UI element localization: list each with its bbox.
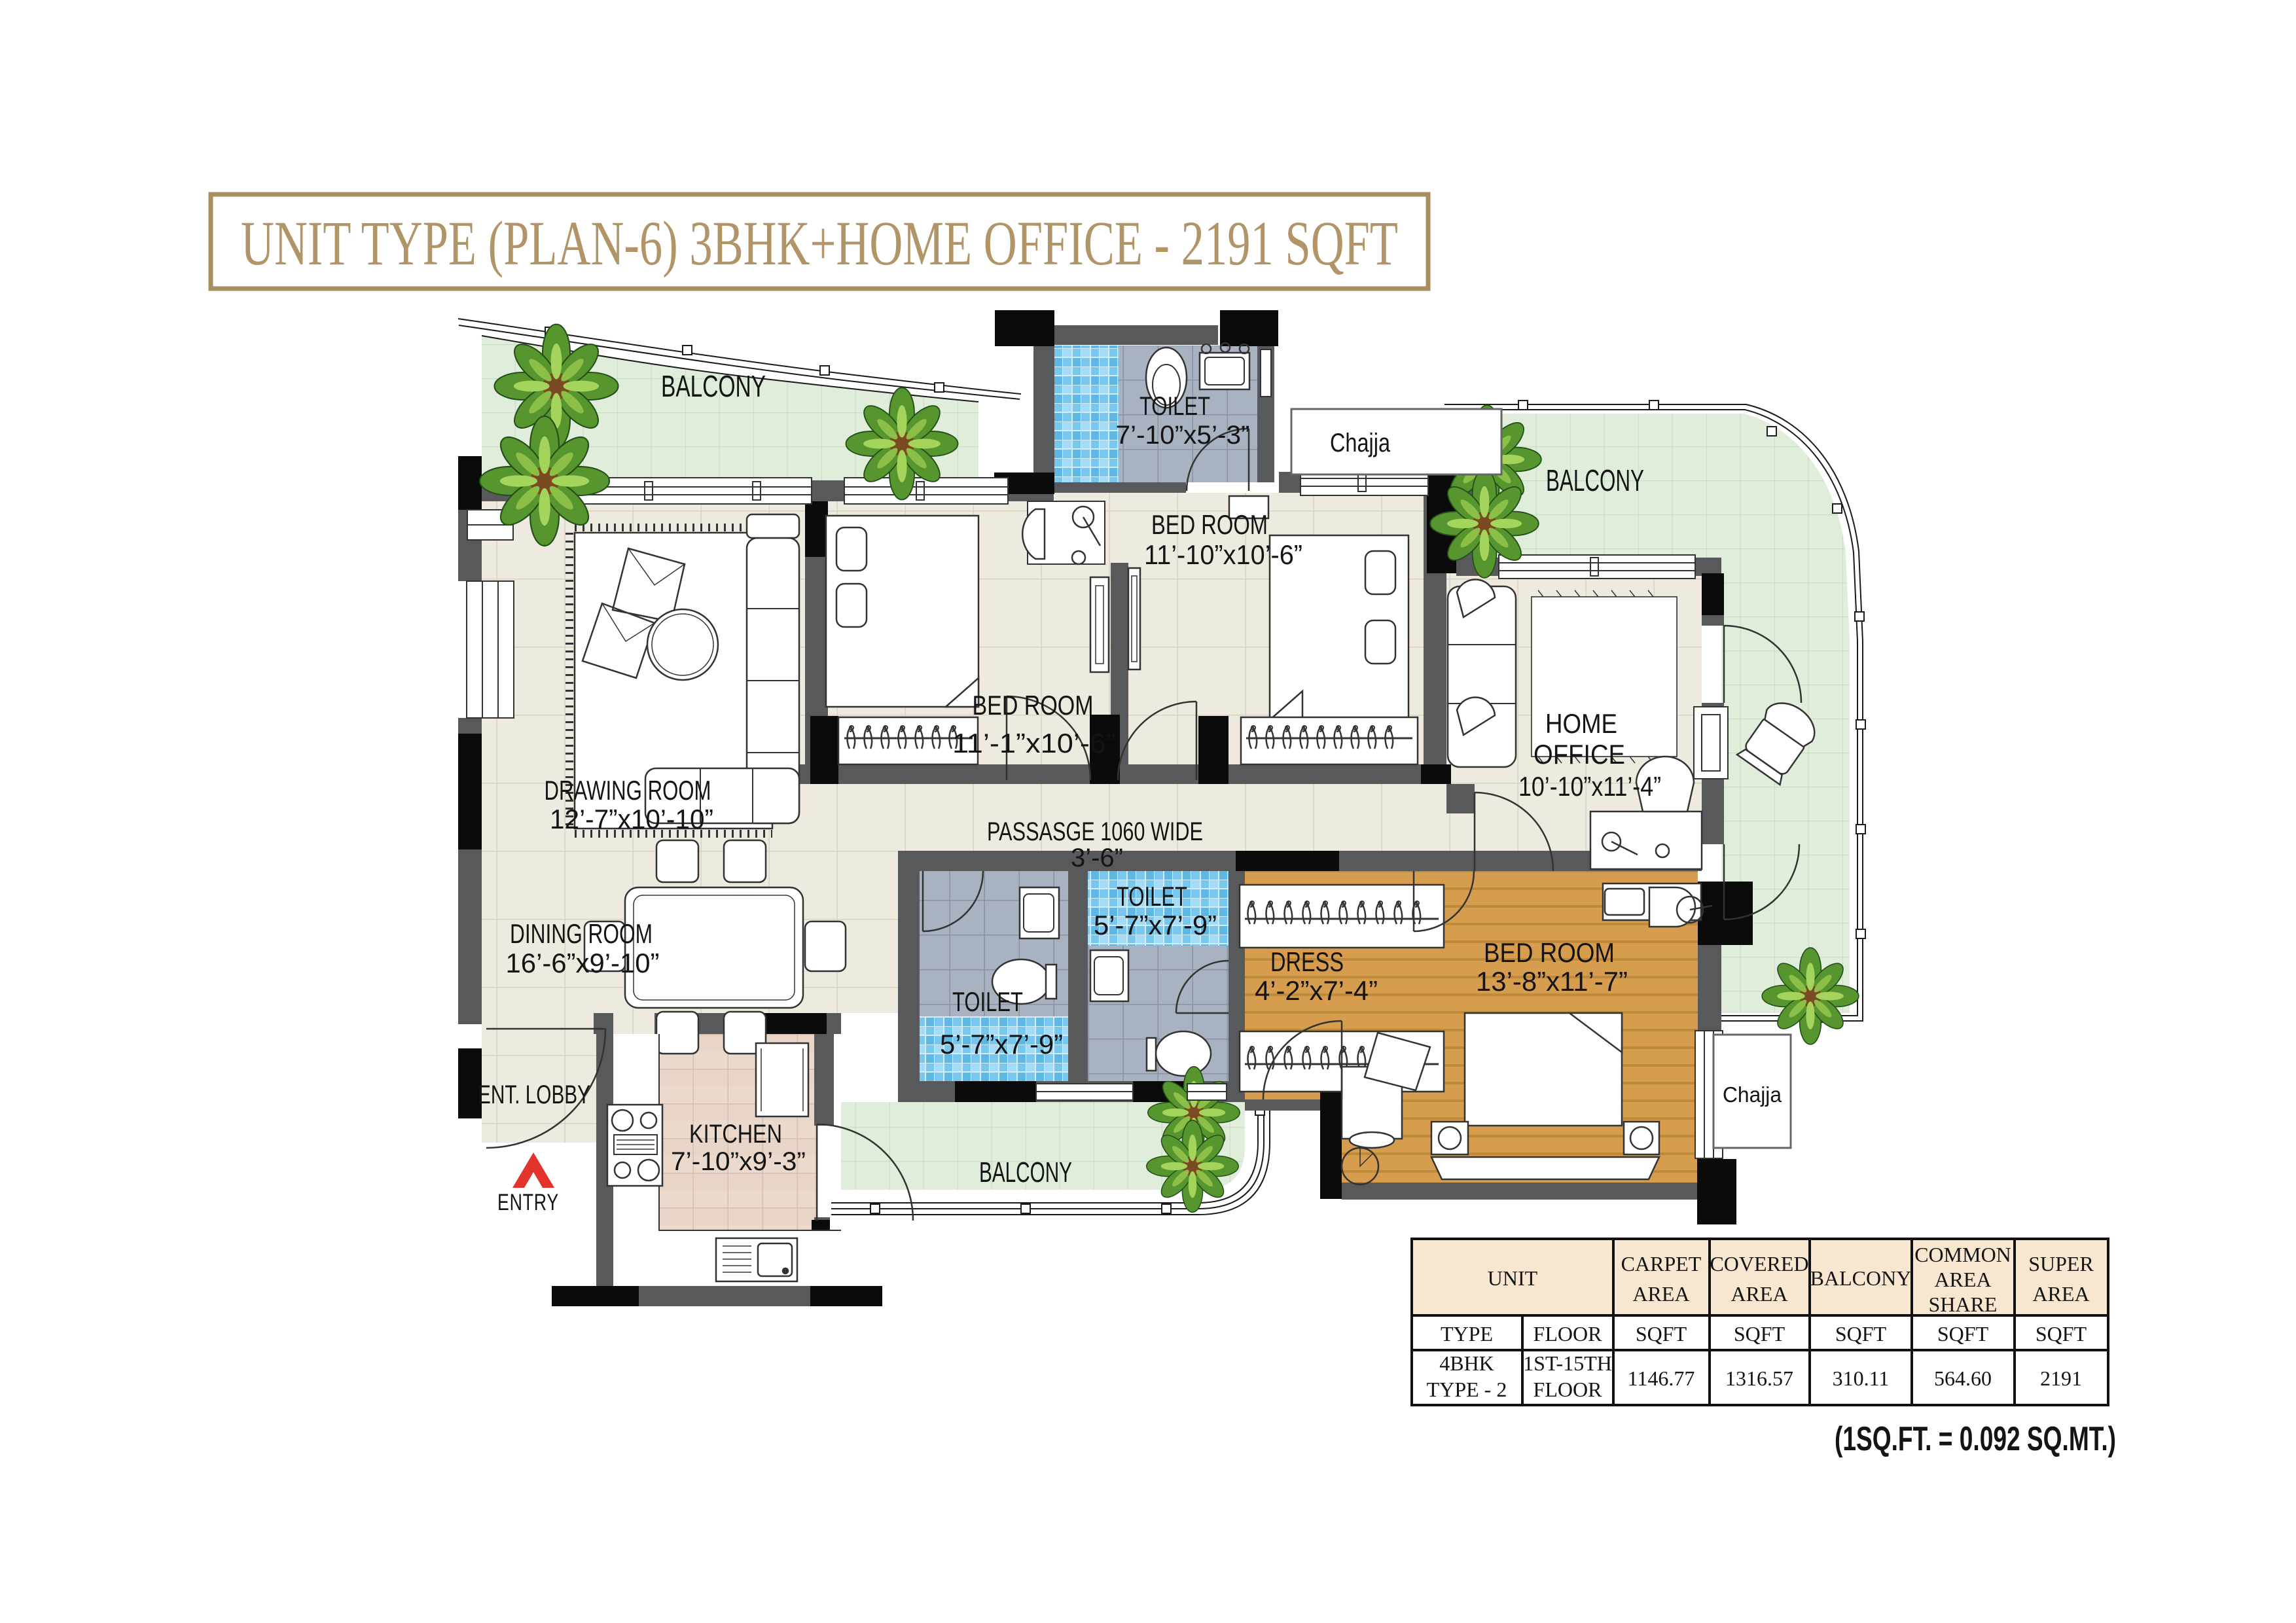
svg-text:DRAWING ROOM: DRAWING ROOM xyxy=(545,775,711,806)
svg-text:10’-10”x11’-4”: 10’-10”x11’-4” xyxy=(1518,771,1661,802)
svg-text:SQFT: SQFT xyxy=(1734,1322,1785,1346)
svg-text:UNIT: UNIT xyxy=(1488,1266,1538,1290)
svg-text:Chajja: Chajja xyxy=(1723,1082,1782,1107)
svg-text:COMMON: COMMON xyxy=(1914,1243,2011,1266)
svg-text:4’-2”x7’-4”: 4’-2”x7’-4” xyxy=(1255,975,1378,1006)
svg-text:BED ROOM: BED ROOM xyxy=(1151,509,1268,540)
svg-text:16’-6”x9’-10”: 16’-6”x9’-10” xyxy=(506,948,660,978)
svg-text:AREA: AREA xyxy=(1934,1268,1991,1291)
svg-text:11’-10”x10’-6”: 11’-10”x10’-6” xyxy=(1144,539,1302,570)
svg-text:TYPE: TYPE xyxy=(1441,1322,1493,1346)
svg-text:OFFICE: OFFICE xyxy=(1534,739,1625,770)
svg-text:7’-10”x9’-3”: 7’-10”x9’-3” xyxy=(671,1147,806,1176)
svg-text:SHARE: SHARE xyxy=(1929,1293,1998,1316)
svg-text:1316.57: 1316.57 xyxy=(1725,1366,1793,1390)
svg-text:SUPER: SUPER xyxy=(2028,1252,2094,1275)
svg-text:TOILET: TOILET xyxy=(952,986,1023,1017)
svg-text:BED ROOM: BED ROOM xyxy=(1484,937,1615,968)
svg-text:11’-1”x10’-6”: 11’-1”x10’-6” xyxy=(952,728,1116,758)
svg-text:AREA: AREA xyxy=(1731,1282,1787,1306)
svg-text:BALCONY: BALCONY xyxy=(1546,463,1644,497)
svg-text:13’-8”x11’-7”: 13’-8”x11’-7” xyxy=(1476,966,1628,997)
svg-text:AREA: AREA xyxy=(1632,1282,1689,1306)
svg-text:BALCONY: BALCONY xyxy=(661,369,766,403)
svg-text:COVERED: COVERED xyxy=(1710,1252,1808,1275)
svg-text:TOILET: TOILET xyxy=(1117,881,1187,912)
svg-text:310.11: 310.11 xyxy=(1833,1366,1890,1390)
svg-text:BALCONY: BALCONY xyxy=(979,1156,1072,1188)
svg-text:2191: 2191 xyxy=(2040,1366,2082,1390)
svg-text:TOILET: TOILET xyxy=(1139,392,1210,421)
svg-text:KITCHEN: KITCHEN xyxy=(689,1120,782,1149)
svg-text:SQFT: SQFT xyxy=(1937,1322,1989,1346)
svg-text:564.60: 564.60 xyxy=(1934,1366,1992,1390)
svg-text:BALCONY: BALCONY xyxy=(1810,1266,1912,1290)
svg-text:BED ROOM: BED ROOM xyxy=(973,690,1094,721)
svg-text:SQFT: SQFT xyxy=(1835,1322,1887,1346)
svg-text:1146.77: 1146.77 xyxy=(1628,1366,1695,1390)
svg-text:SQFT: SQFT xyxy=(2036,1322,2087,1346)
svg-text:TYPE - 2: TYPE - 2 xyxy=(1427,1378,1507,1401)
svg-text:AREA: AREA xyxy=(2032,1282,2089,1306)
svg-text:(1SQ.FT. = 0.092 SQ.MT.): (1SQ.FT. = 0.092 SQ.MT.) xyxy=(1835,1420,2116,1458)
svg-text:1ST-15TH: 1ST-15TH xyxy=(1523,1351,1612,1375)
svg-text:7’-10”x5’-3”: 7’-10”x5’-3” xyxy=(1116,421,1250,450)
svg-text:FLOOR: FLOOR xyxy=(1534,1322,1603,1346)
svg-text:12’-7”x10’-10”: 12’-7”x10’-10” xyxy=(550,804,713,834)
svg-text:ENTRY: ENTRY xyxy=(497,1190,559,1215)
svg-text:DINING ROOM: DINING ROOM xyxy=(510,918,653,949)
svg-text:5’-7”x7’-9”: 5’-7”x7’-9” xyxy=(1094,910,1217,940)
svg-text:Chajja: Chajja xyxy=(1330,429,1391,457)
svg-text:ENT. LOBBY: ENT. LOBBY xyxy=(478,1080,590,1109)
svg-text:UNIT TYPE (PLAN-6) 3BHK+HOME O: UNIT TYPE (PLAN-6) 3BHK+HOME OFFICE - 21… xyxy=(241,208,1398,278)
svg-text:CARPET: CARPET xyxy=(1621,1252,1702,1275)
svg-text:3’-6”: 3’-6” xyxy=(1071,844,1123,872)
svg-text:DRESS: DRESS xyxy=(1270,946,1344,977)
svg-text:SQFT: SQFT xyxy=(1636,1322,1687,1346)
svg-text:PASSASGE 1060 WIDE: PASSASGE 1060 WIDE xyxy=(987,817,1203,846)
svg-text:4BHK: 4BHK xyxy=(1439,1351,1494,1375)
svg-text:FLOOR: FLOOR xyxy=(1534,1378,1603,1401)
svg-text:5’-7”x7’-9”: 5’-7”x7’-9” xyxy=(940,1029,1063,1060)
svg-text:HOME: HOME xyxy=(1545,708,1617,739)
